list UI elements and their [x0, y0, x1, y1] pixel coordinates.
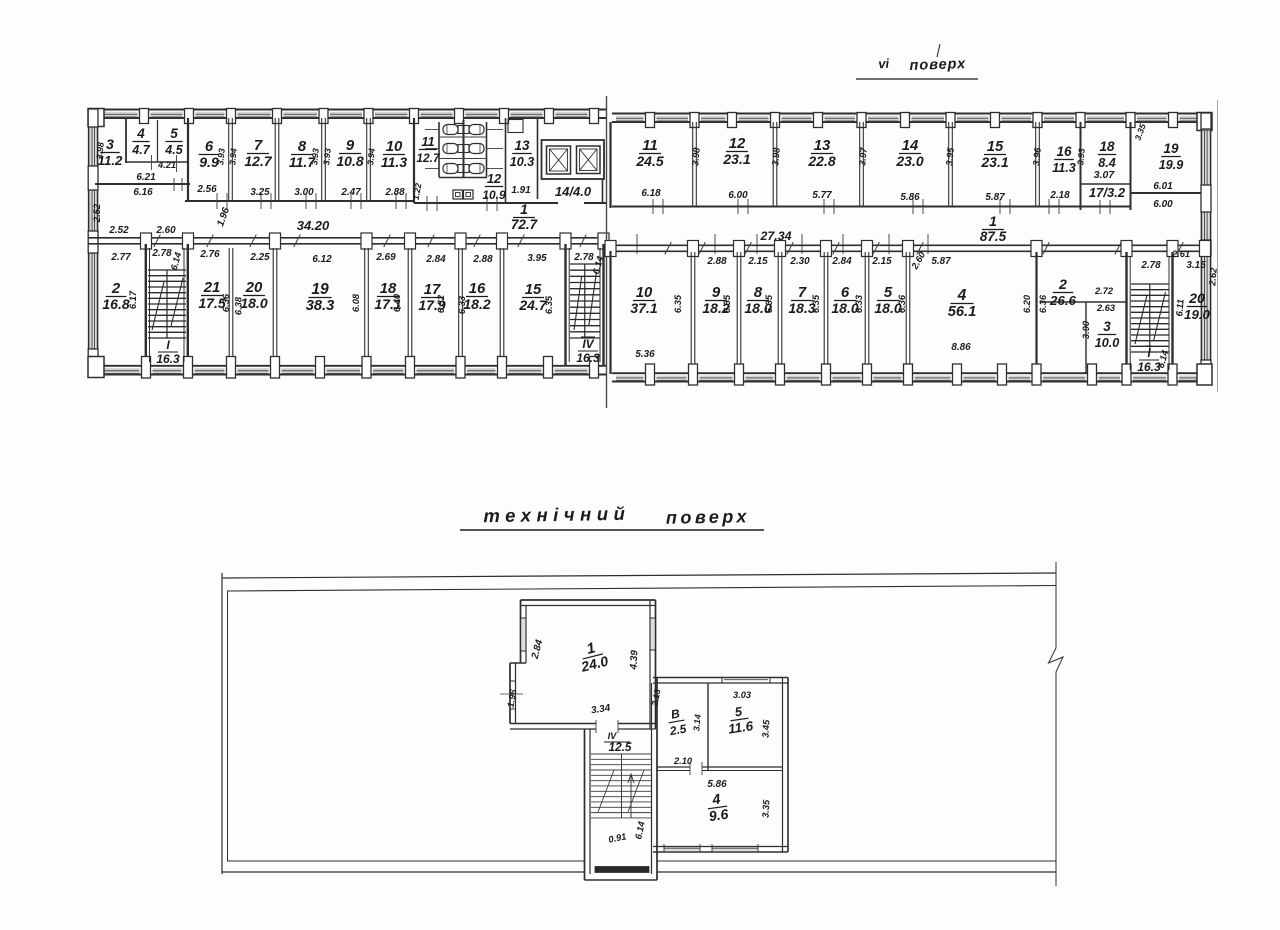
svg-text:11.3: 11.3	[1052, 161, 1076, 175]
svg-text:2.10: 2.10	[673, 756, 693, 766]
svg-text:2.47: 2.47	[340, 187, 361, 198]
svg-text:6.08: 6.08	[351, 293, 361, 312]
svg-text:3.03: 3.03	[733, 690, 752, 700]
svg-text:56.1: 56.1	[948, 304, 977, 320]
svg-text:2.76: 2.76	[199, 249, 220, 260]
svg-text:6.40: 6.40	[392, 293, 402, 312]
svg-text:26.6: 26.6	[1049, 293, 1076, 308]
svg-text:4: 4	[136, 126, 145, 141]
svg-text:6: 6	[841, 285, 850, 301]
svg-text:2.60: 2.60	[155, 225, 176, 236]
svg-text:16.3: 16.3	[576, 351, 600, 365]
svg-text:6.11: 6.11	[1174, 299, 1185, 317]
svg-text:19: 19	[1163, 141, 1179, 156]
svg-text:22.8: 22.8	[807, 153, 835, 169]
svg-text:37.1: 37.1	[630, 300, 657, 316]
svg-text:3.95: 3.95	[944, 146, 956, 166]
svg-text:14: 14	[902, 138, 919, 154]
svg-text:3.93: 3.93	[321, 148, 332, 166]
svg-text:5.87: 5.87	[931, 256, 951, 267]
svg-text:4.7: 4.7	[131, 143, 151, 157]
svg-text:20: 20	[245, 280, 263, 296]
svg-text:13: 13	[814, 138, 831, 154]
svg-text:3.07: 3.07	[1094, 169, 1116, 181]
svg-text:3.94: 3.94	[365, 148, 376, 166]
svg-text:6.12: 6.12	[312, 254, 332, 265]
svg-text:8: 8	[298, 139, 307, 155]
svg-text:2.88: 2.88	[472, 254, 493, 265]
svg-text:технічний: технічний	[483, 503, 630, 527]
svg-text:16.3: 16.3	[156, 352, 180, 366]
svg-text:6.35: 6.35	[673, 294, 683, 313]
svg-text:5.87: 5.87	[985, 192, 1005, 203]
svg-text:72.7: 72.7	[511, 217, 539, 232]
svg-text:6.35: 6.35	[722, 294, 732, 313]
svg-text:3.25: 3.25	[250, 187, 270, 198]
svg-text:3.15: 3.15	[1186, 260, 1206, 271]
svg-text:2.62: 2.62	[1207, 266, 1219, 287]
svg-text:2.30: 2.30	[789, 256, 810, 267]
svg-text:1: 1	[989, 213, 997, 229]
svg-text:3.35: 3.35	[761, 799, 772, 818]
svg-text:15: 15	[987, 139, 1004, 155]
svg-text:6.36: 6.36	[897, 294, 907, 313]
svg-text:11: 11	[642, 138, 657, 154]
svg-text:23.0: 23.0	[895, 153, 923, 169]
svg-text:6.36: 6.36	[221, 293, 231, 312]
svg-text:19: 19	[311, 281, 329, 298]
svg-text:2.78: 2.78	[1140, 260, 1161, 271]
svg-text:12.5: 12.5	[609, 740, 632, 754]
svg-text:6.36: 6.36	[1038, 294, 1048, 313]
svg-text:10.3: 10.3	[510, 155, 535, 169]
svg-text:2.15: 2.15	[747, 256, 768, 267]
svg-text:16.8: 16.8	[102, 296, 129, 312]
svg-text:6.00: 6.00	[1153, 199, 1173, 210]
svg-text:23.1: 23.1	[980, 154, 1008, 170]
svg-text:12.7: 12.7	[416, 151, 441, 165]
svg-text:2.56: 2.56	[196, 184, 217, 195]
svg-text:6.33: 6.33	[457, 295, 467, 314]
svg-text:12.7: 12.7	[244, 153, 272, 169]
svg-text:7: 7	[798, 285, 807, 301]
svg-text:3.45: 3.45	[761, 719, 772, 738]
svg-text:21: 21	[203, 280, 221, 296]
svg-text:3.94: 3.94	[227, 148, 238, 166]
svg-text:2.69: 2.69	[375, 252, 396, 263]
svg-text:2.88: 2.88	[706, 256, 727, 267]
svg-text:6.33: 6.33	[854, 294, 864, 313]
svg-text:6.00: 6.00	[728, 190, 748, 201]
svg-text:3.90: 3.90	[1081, 320, 1091, 339]
svg-text:13: 13	[514, 138, 530, 153]
svg-text:IV: IV	[582, 337, 594, 351]
svg-text:2.88: 2.88	[384, 187, 405, 198]
svg-text:2.25: 2.25	[249, 252, 270, 263]
svg-text:7: 7	[254, 138, 263, 154]
svg-text:9: 9	[346, 138, 355, 154]
svg-text:2.52: 2.52	[92, 203, 102, 223]
svg-text:2.72: 2.72	[1094, 286, 1114, 296]
svg-text:6.01: 6.01	[1153, 181, 1172, 192]
svg-text:6.38: 6.38	[234, 296, 244, 315]
svg-text:12: 12	[729, 136, 746, 152]
svg-text:3: 3	[106, 137, 114, 153]
svg-text:16: 16	[469, 281, 486, 297]
svg-text:5.77: 5.77	[812, 190, 832, 201]
svg-text:4.39: 4.39	[628, 649, 640, 670]
svg-text:10.0: 10.0	[1095, 336, 1120, 350]
svg-text:3: 3	[1103, 319, 1111, 334]
svg-text:19.9: 19.9	[1159, 158, 1184, 172]
svg-text:87.5: 87.5	[980, 229, 1007, 244]
svg-text:поверх: поверх	[909, 56, 966, 74]
svg-text:2.77: 2.77	[110, 252, 131, 263]
svg-text:11.3: 11.3	[381, 154, 407, 170]
svg-text:11: 11	[421, 134, 434, 149]
svg-text:19.0: 19.0	[1184, 307, 1210, 322]
svg-text:9: 9	[712, 285, 721, 301]
svg-text:8: 8	[754, 285, 763, 301]
svg-text:8.86: 8.86	[951, 342, 971, 353]
svg-text:10.9: 10.9	[482, 188, 506, 202]
svg-text:3.93: 3.93	[215, 148, 226, 166]
svg-text:6.21: 6.21	[136, 172, 155, 183]
svg-text:3.98: 3.98	[690, 146, 702, 166]
svg-text:12: 12	[487, 171, 501, 186]
svg-text:8.4: 8.4	[1098, 156, 1116, 170]
svg-text:2.78: 2.78	[151, 248, 172, 259]
svg-text:9.6: 9.6	[708, 806, 730, 825]
svg-text:5.86: 5.86	[900, 192, 920, 203]
svg-text:14/4.0: 14/4.0	[555, 184, 592, 199]
svg-text:поверх: поверх	[666, 506, 750, 527]
svg-text:2.61: 2.61	[1171, 249, 1190, 259]
svg-text:2.18: 2.18	[1049, 190, 1070, 201]
svg-text:6.16: 6.16	[133, 187, 153, 198]
svg-text:2.52: 2.52	[108, 225, 129, 236]
svg-text:38.3: 38.3	[306, 298, 335, 314]
svg-text:5: 5	[170, 126, 178, 141]
svg-text:10.8: 10.8	[336, 153, 363, 169]
svg-text:1: 1	[520, 201, 528, 217]
svg-text:6.18: 6.18	[641, 188, 661, 199]
svg-text:5.86: 5.86	[707, 779, 727, 790]
svg-text:3.95: 3.95	[527, 253, 547, 264]
svg-text:20: 20	[1188, 291, 1205, 307]
svg-text:6.17: 6.17	[128, 290, 138, 309]
svg-text:2.63: 2.63	[1096, 303, 1116, 313]
svg-text:3.14: 3.14	[691, 714, 702, 732]
svg-text:3.00: 3.00	[294, 187, 314, 198]
svg-text:2.15: 2.15	[871, 256, 892, 267]
svg-text:3.97: 3.97	[857, 146, 869, 166]
svg-text:2.78: 2.78	[573, 252, 594, 263]
svg-text:18.2: 18.2	[463, 296, 490, 312]
svg-text:6.35: 6.35	[544, 295, 554, 314]
svg-text:4.5: 4.5	[164, 143, 184, 157]
svg-text:23.1: 23.1	[722, 151, 750, 167]
svg-text:5.36: 5.36	[635, 349, 655, 360]
svg-text:34.20: 34.20	[297, 218, 330, 233]
svg-text:18: 18	[1099, 139, 1115, 154]
svg-text:5: 5	[884, 285, 893, 301]
svg-text:3.93: 3.93	[309, 148, 320, 166]
svg-text:15: 15	[525, 282, 542, 298]
svg-text:17/3.2: 17/3.2	[1089, 185, 1126, 200]
svg-text:16: 16	[1056, 144, 1072, 159]
svg-text:6.35: 6.35	[764, 294, 774, 313]
svg-text:2.84: 2.84	[831, 256, 852, 267]
svg-text:2: 2	[1058, 277, 1067, 293]
svg-text:4: 4	[957, 287, 967, 304]
svg-text:18.0: 18.0	[240, 295, 267, 311]
svg-text:1.91: 1.91	[511, 185, 530, 196]
svg-text:6.35: 6.35	[811, 294, 821, 313]
svg-text:3.96: 3.96	[1031, 146, 1043, 166]
svg-text:2.84: 2.84	[425, 254, 446, 265]
svg-text:6.20: 6.20	[1022, 294, 1032, 313]
svg-text:2: 2	[111, 281, 121, 297]
svg-text:10: 10	[386, 139, 403, 155]
svg-text:3.93: 3.93	[1075, 148, 1086, 166]
svg-text:4.21: 4.21	[157, 160, 176, 170]
svg-text:6: 6	[205, 139, 214, 155]
svg-text:10: 10	[636, 285, 653, 301]
svg-text:3.98: 3.98	[94, 142, 105, 160]
svg-text:vi: vi	[878, 56, 890, 72]
svg-text:24.5: 24.5	[635, 153, 663, 169]
svg-text:6.32: 6.32	[436, 294, 446, 313]
svg-text:3.98: 3.98	[770, 146, 782, 166]
